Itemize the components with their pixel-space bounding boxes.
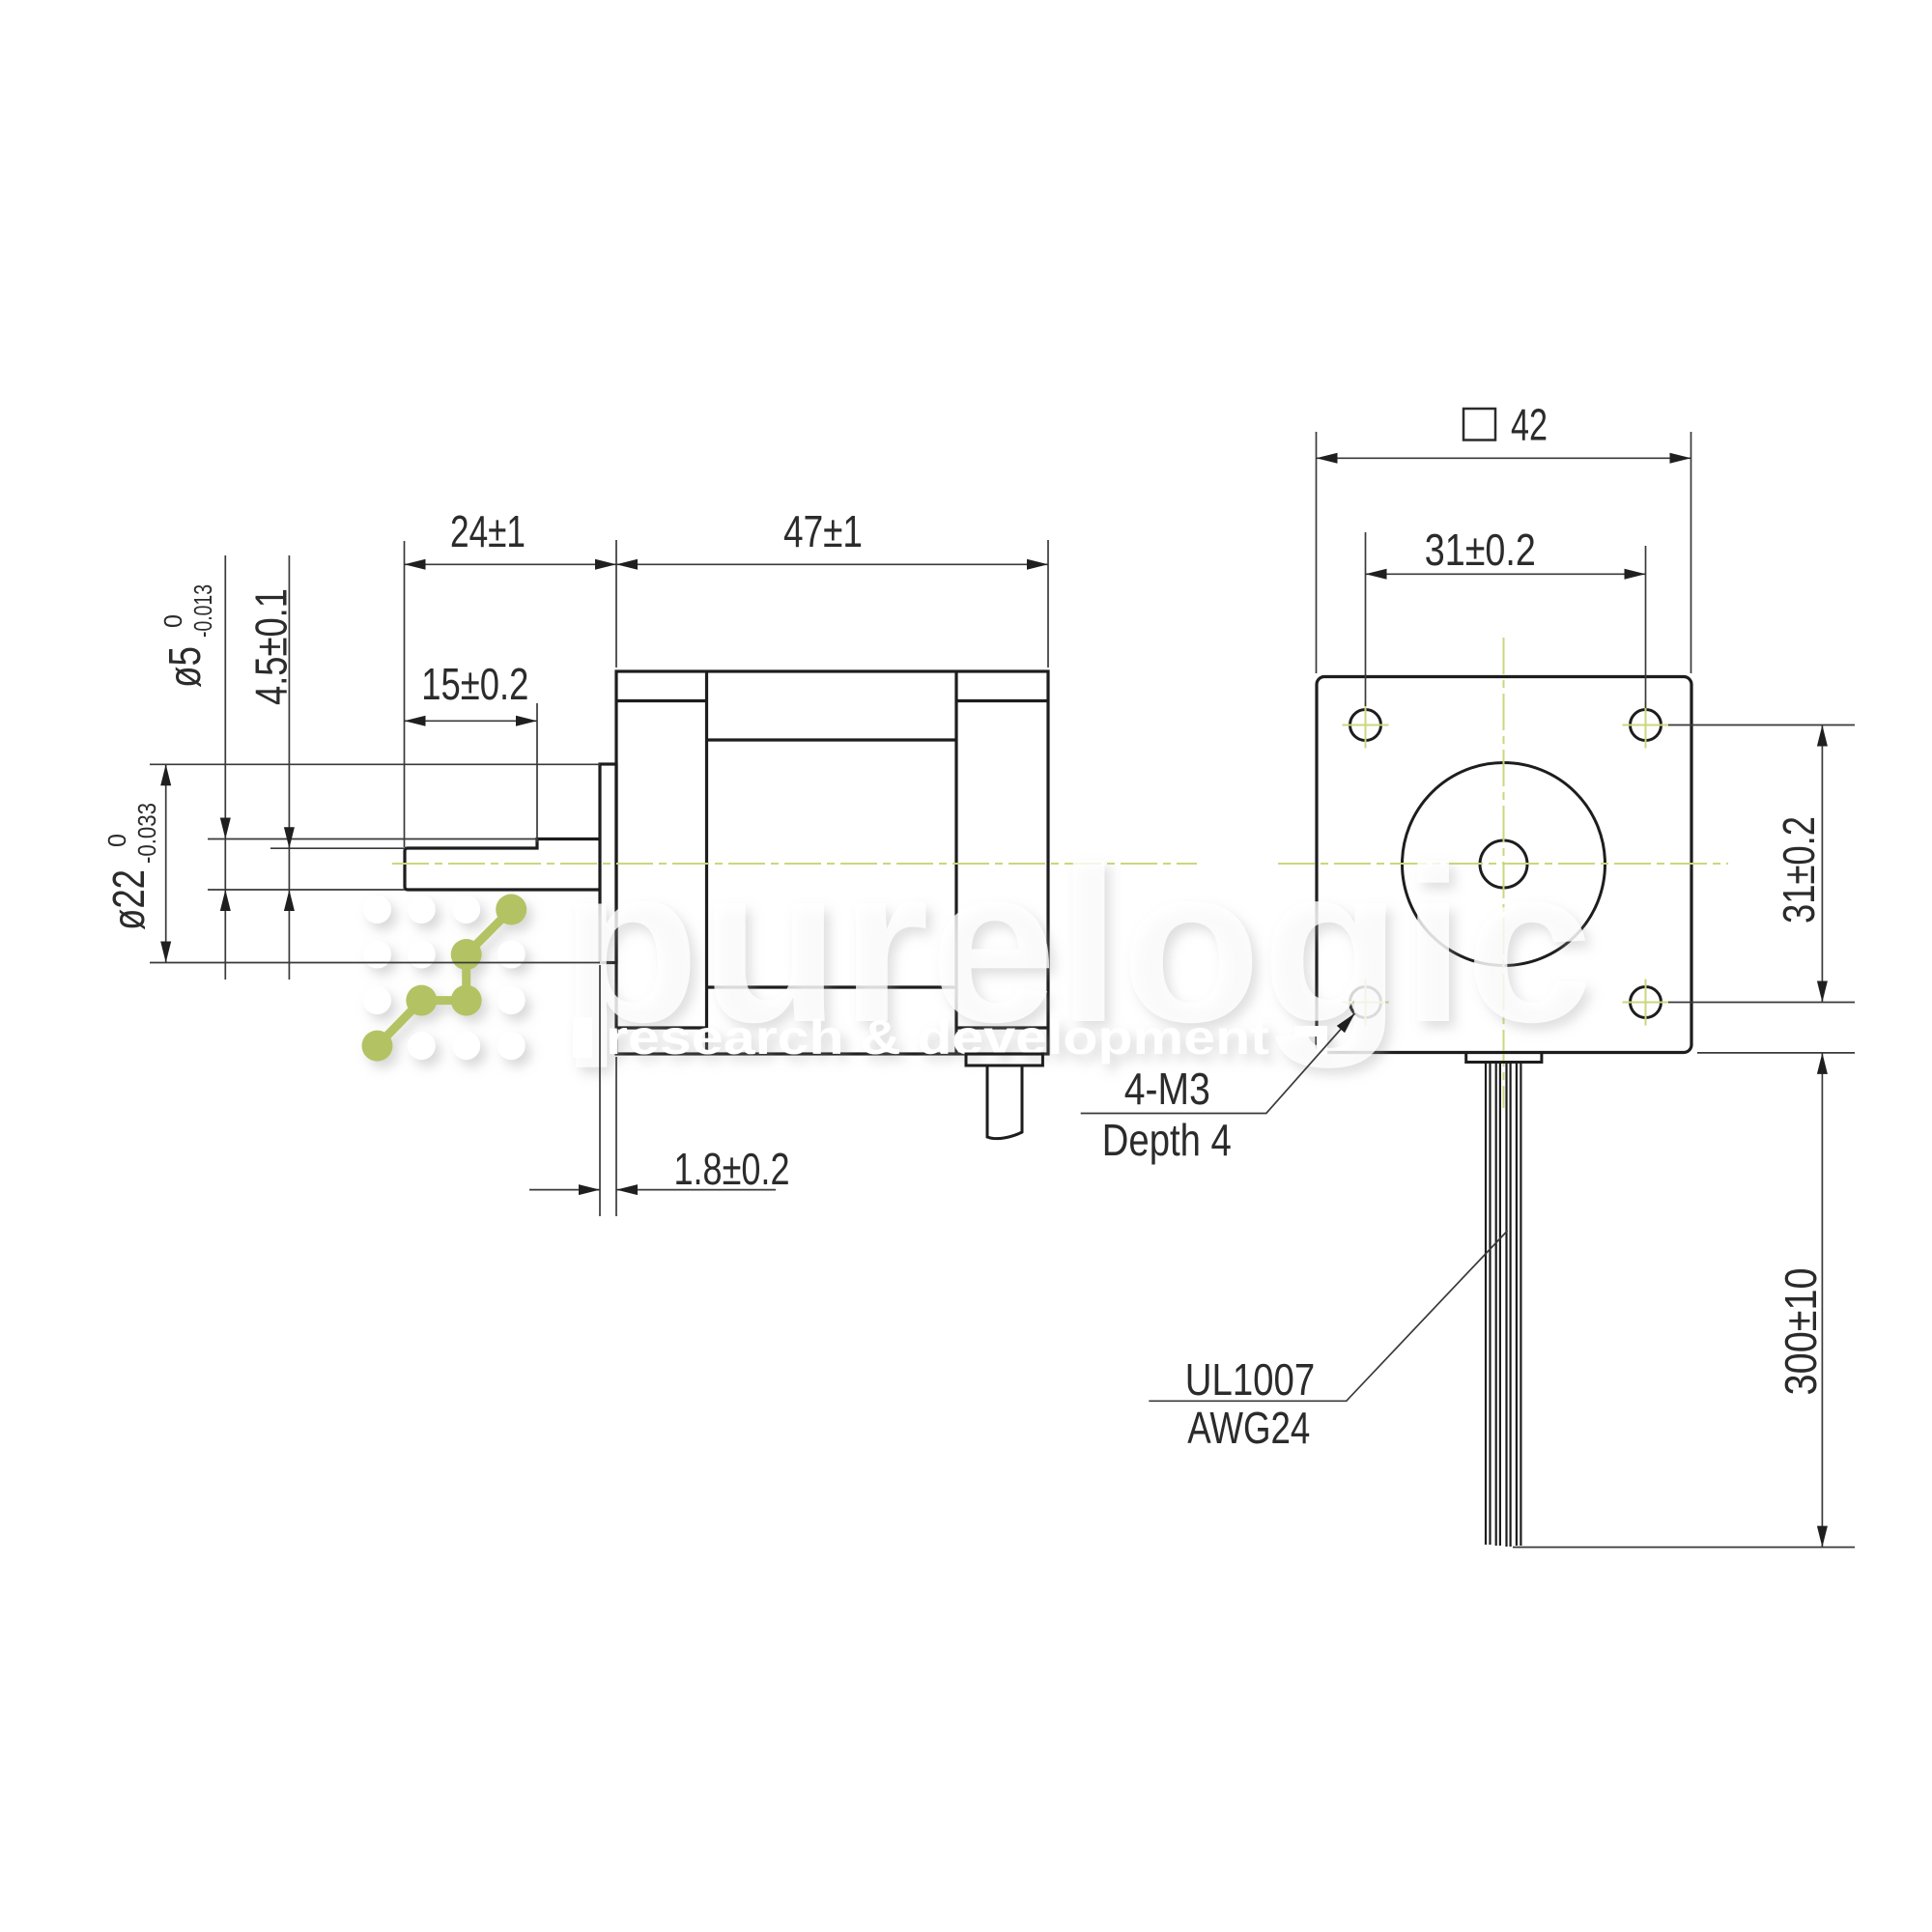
svg-text:15±0.2: 15±0.2 (421, 659, 528, 709)
svg-text:4.5±0.1: 4.5±0.1 (245, 588, 296, 705)
svg-text:1.8±0.2: 1.8±0.2 (674, 1144, 790, 1194)
svg-text:4-M3: 4-M3 (1124, 1064, 1210, 1114)
svg-text:300±10: 300±10 (1776, 1267, 1826, 1395)
svg-text:UL1007: UL1007 (1185, 1354, 1316, 1405)
svg-text:24±1: 24±1 (450, 506, 526, 556)
svg-text:47±1: 47±1 (783, 506, 863, 556)
svg-text:0: 0 (102, 834, 131, 847)
svg-text:-0.013: -0.013 (188, 584, 217, 638)
svg-text:ø5: ø5 (159, 646, 210, 688)
svg-text:31±0.2: 31±0.2 (1425, 525, 1536, 575)
svg-text:Depth 4: Depth 4 (1102, 1115, 1232, 1165)
svg-text:AWG24: AWG24 (1187, 1403, 1310, 1453)
svg-text:-0.033: -0.033 (132, 803, 161, 864)
svg-text:ø22: ø22 (103, 869, 154, 930)
svg-text:42: 42 (1511, 400, 1548, 450)
svg-text:31±0.2: 31±0.2 (1774, 816, 1824, 923)
svg-text:0: 0 (158, 614, 187, 628)
svg-text:research & development: research & development (606, 1010, 1269, 1065)
